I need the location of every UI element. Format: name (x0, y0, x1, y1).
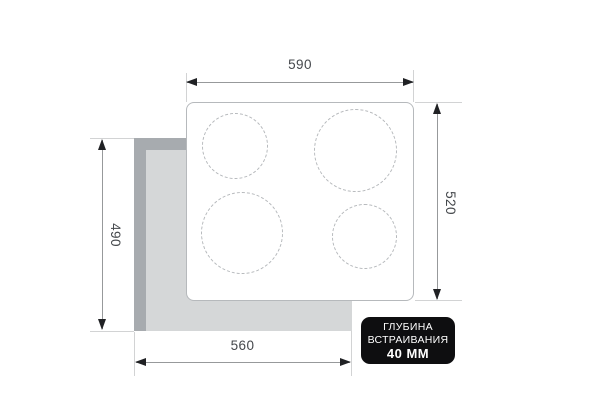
burner-circle-bottom-right (332, 204, 397, 269)
cooktop-installation-diagram: 590 520 490 560 ГЛУБИНА ВСТРАИВАНИЯ 40 М… (0, 0, 600, 420)
arrowhead-right-icon (403, 78, 414, 86)
depth-badge: ГЛУБИНА ВСТРАИВАНИЯ 40 ММ (361, 317, 455, 364)
burner-circle-bottom-left (201, 192, 283, 274)
dimension-line-right (437, 104, 438, 299)
dimension-line-bottom (136, 362, 350, 363)
arrowhead-left-icon (186, 78, 197, 86)
dimension-line-left (102, 140, 103, 329)
extension-line-bottom-right (351, 331, 352, 376)
arrowhead-up-icon (98, 139, 106, 150)
burner-circle-top-right (314, 109, 397, 192)
arrowhead-right-icon (340, 358, 351, 366)
arrowhead-left-icon (135, 358, 146, 366)
badge-line-2: ВСТРАИВАНИЯ (368, 334, 449, 346)
cooktop-panel (186, 102, 414, 301)
extension-line-right-lower (415, 300, 462, 301)
extension-line-left-lower (90, 331, 134, 332)
dimension-label-cutout-width: 560 (134, 338, 351, 354)
dimension-label-cutout-depth: 490 (107, 215, 123, 255)
extension-line-left-upper (90, 138, 134, 139)
arrowhead-down-icon (98, 319, 106, 330)
badge-line-1: ГЛУБИНА (383, 321, 433, 333)
dimension-label-depth: 520 (442, 183, 458, 223)
badge-depth-value: 40 ММ (387, 347, 429, 361)
arrowhead-up-icon (433, 103, 441, 114)
dimension-line-top (187, 82, 413, 83)
extension-line-top-right (413, 70, 414, 102)
burner-circle-top-left (202, 113, 268, 179)
arrowhead-down-icon (433, 289, 441, 300)
dimension-label-width: 590 (186, 57, 414, 73)
